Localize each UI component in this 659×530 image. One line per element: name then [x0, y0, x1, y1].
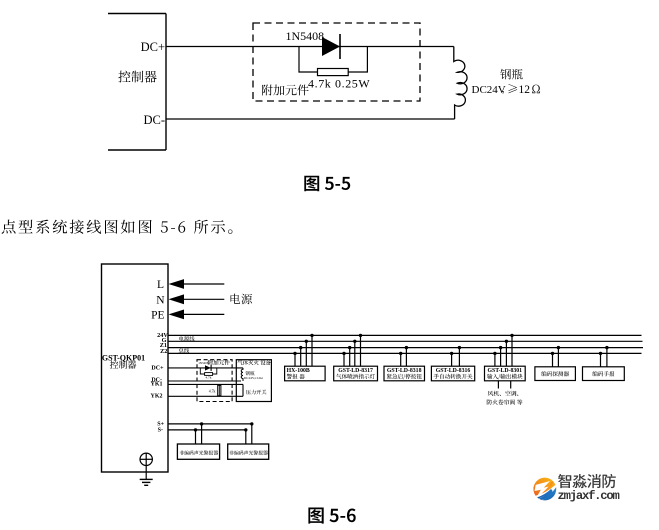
svg-text:4.7k: 4.7k	[209, 389, 216, 393]
svg-text:L: L	[157, 279, 164, 291]
svg-text:DC+: DC+	[141, 40, 165, 54]
svg-text:GST-LD-8318: GST-LD-8318	[387, 368, 422, 374]
svg-text:HX-100B: HX-100B	[287, 368, 310, 374]
svg-text:N: N	[156, 294, 165, 306]
svg-text:GST-LD-8301: GST-LD-8301	[488, 368, 523, 374]
svg-text:Z2: Z2	[160, 348, 167, 355]
svg-text:zmjaxf.com: zmjaxf.com	[558, 489, 620, 503]
svg-text:DC-: DC-	[143, 113, 165, 127]
svg-text:PE: PE	[151, 310, 164, 322]
svg-text:4.7k 0.25W: 4.7k 0.25W	[308, 77, 370, 91]
svg-text:GST-LD-8317: GST-LD-8317	[338, 368, 373, 374]
svg-text:GST-LD-8316: GST-LD-8316	[436, 368, 471, 374]
svg-text:YK2: YK2	[151, 393, 163, 399]
svg-text:GST-QKP01: GST-QKP01	[102, 354, 145, 363]
svg-text:1N5408: 1N5408	[286, 29, 325, 43]
svg-text:DC+: DC+	[151, 365, 164, 371]
svg-text:S-: S-	[158, 428, 163, 434]
svg-text:YK1: YK1	[151, 382, 163, 388]
svg-text:12: 12	[519, 84, 531, 96]
svg-text:DC24V: DC24V	[472, 84, 506, 96]
svg-text:1N5408: 1N5408	[198, 361, 209, 365]
svg-text:4.7k: 4.7k	[206, 376, 212, 380]
